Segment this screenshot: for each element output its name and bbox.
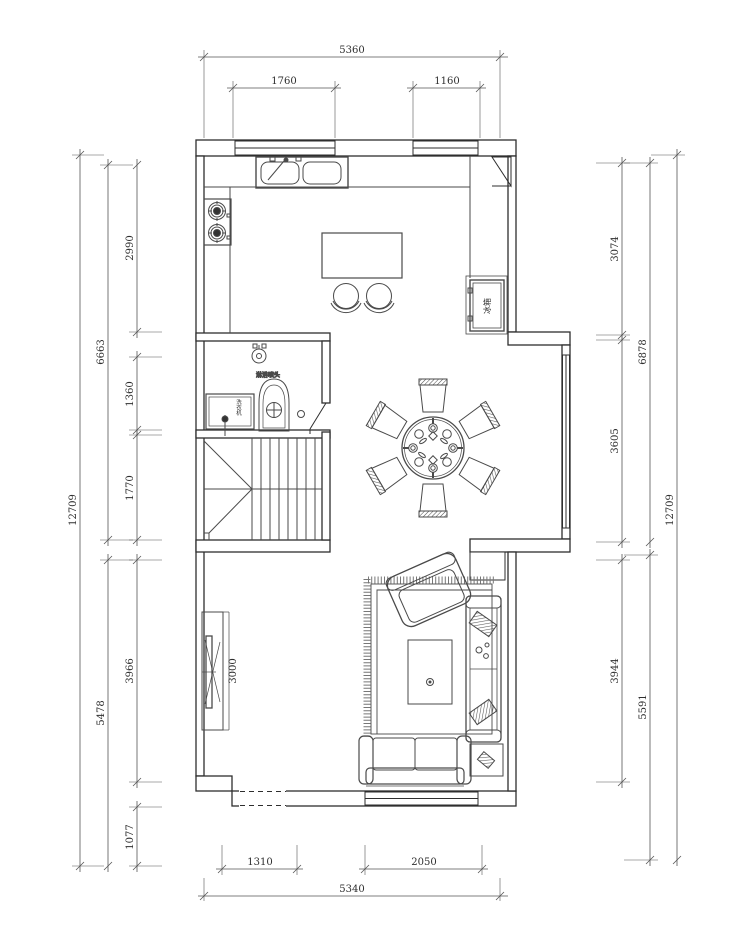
wall-bath-top: [196, 333, 330, 341]
staircase: [204, 438, 322, 540]
dimension-annotations: 5360 1760 1160 1310 2050: [68, 45, 685, 901]
sofa-bottom: [359, 736, 471, 786]
fridge-label: 冰箱: [482, 298, 492, 314]
side-table: [470, 744, 503, 776]
bathroom: 淋浴喷头 洗衣机: [206, 344, 305, 436]
dining-set: [366, 379, 500, 517]
shower-label: 淋浴喷头: [256, 371, 280, 379]
washing-machine-label: 洗衣机: [235, 398, 242, 417]
dim-right-dining: 3605: [610, 428, 621, 453]
coffee-table: [408, 640, 452, 704]
window-dining-right: [563, 355, 570, 528]
dim-right-kitchen: 3074: [610, 236, 621, 261]
dim-top-window-left: 1760: [271, 76, 296, 87]
dining-chair: [457, 401, 500, 442]
wall-dining-bottom: [470, 539, 570, 552]
dim-right-upper-total: 6878: [638, 339, 649, 364]
window-top-right: [413, 141, 478, 155]
shower-head-icon: [252, 344, 266, 363]
floor-drain: [298, 411, 305, 418]
wall-right-living: [508, 552, 516, 791]
dim-tv-length: 3000: [228, 658, 239, 683]
fridge: 冰箱: [466, 276, 507, 334]
dining-chair: [457, 454, 500, 495]
dining-table: [402, 417, 464, 479]
dim-right-overall: 12709: [665, 494, 676, 526]
dim-bottom-window: 2050: [411, 857, 436, 868]
dim-left-bath: 1360: [125, 381, 136, 406]
dim-bottom-overall: 5340: [339, 884, 364, 895]
dim-bottom-opening: 1310: [247, 857, 272, 868]
window-top-left: [235, 141, 335, 155]
dining-chair: [366, 454, 409, 495]
dim-bottom: 1310 2050 5340: [198, 845, 508, 901]
island-table: [322, 233, 402, 278]
dining-chair: [366, 401, 409, 442]
dining-chair: [419, 379, 447, 412]
wall-left: [196, 156, 204, 776]
dim-right-living: 3944: [610, 658, 621, 683]
dim-left: 12709 6663 5478 2990 1360 1770: [68, 149, 162, 872]
dim-left-overall: 12709: [68, 494, 79, 526]
bar-stool: [364, 284, 394, 313]
floor-plan-canvas: 冰箱 淋浴喷头 洗衣机: [0, 0, 740, 941]
stove: [204, 199, 231, 245]
wall-bottom-left-step: [196, 776, 232, 791]
dining-chair: [419, 484, 447, 517]
wall-stair-bottom: [196, 540, 330, 552]
dim-top-window-right: 1160: [434, 76, 459, 87]
dim-left-kitchen: 2990: [125, 235, 136, 260]
dim-left-lower-total: 5478: [96, 700, 107, 725]
toilet: [259, 379, 289, 431]
tv-cabinet: 3000: [202, 612, 239, 730]
bar-stool: [331, 284, 361, 313]
floor-plan-drawing: 冰箱 淋浴喷头 洗衣机: [0, 0, 740, 941]
kitchen: 冰箱: [204, 156, 507, 334]
dim-top-overall: 5360: [339, 45, 364, 56]
dim-left-stairs: 1770: [125, 475, 136, 500]
kitchen-sink: [256, 157, 348, 188]
wall-dining-top: [508, 332, 570, 345]
dim-right-lower-total: 5591: [638, 694, 649, 719]
dim-left-living: 3966: [125, 658, 136, 683]
dim-top: 5360 1760 1160: [198, 45, 508, 138]
sofa-right: [466, 596, 501, 742]
dim-left-porch: 1077: [125, 824, 136, 849]
window-bottom: [365, 792, 478, 805]
living-room: 3000: [202, 550, 503, 786]
wall-bath-right-upper: [322, 341, 330, 403]
wall-bath-right-lower: [322, 432, 330, 540]
duct-box: [470, 552, 505, 580]
dim-right: 3074 3605 3944 6878 5591 12709: [596, 149, 685, 866]
dim-left-upper-total: 6663: [96, 339, 107, 364]
opening-dashed: [239, 790, 286, 807]
